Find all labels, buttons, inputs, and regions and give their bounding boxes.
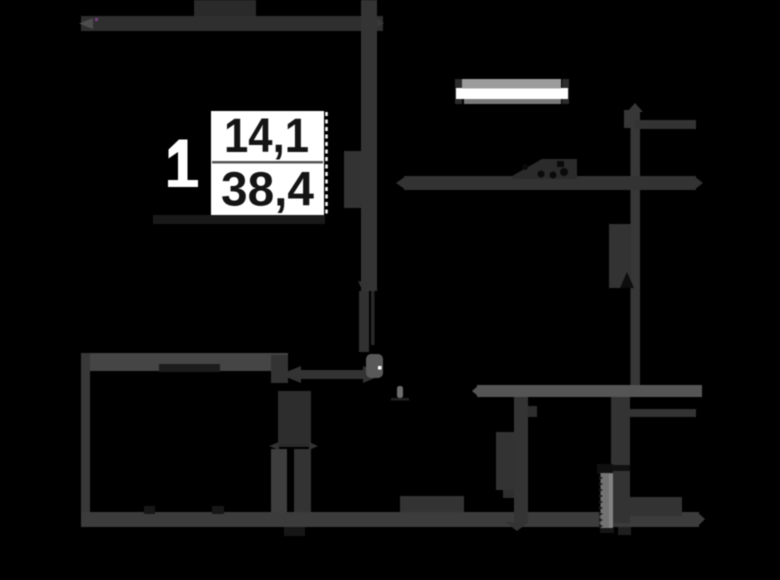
svg-text:14,1: 14,1	[224, 110, 309, 163]
svg-text:38,4: 38,4	[221, 164, 314, 217]
